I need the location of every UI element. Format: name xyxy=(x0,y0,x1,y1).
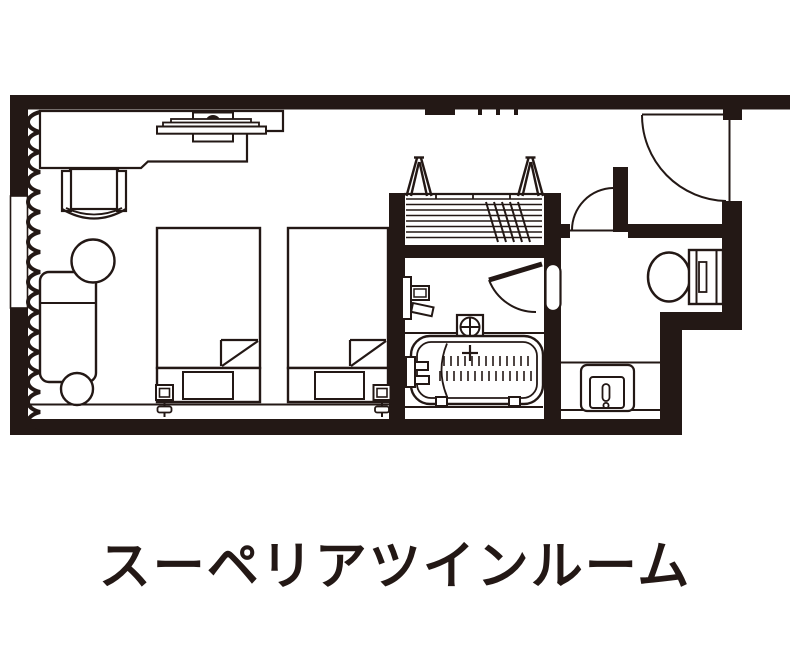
wall-bottom xyxy=(10,419,682,435)
vanity-sink xyxy=(581,365,634,411)
tub-faucet-plate xyxy=(406,357,415,387)
twin-bed-right xyxy=(288,228,388,402)
hanging-clothes-lines xyxy=(486,202,530,242)
wall-closet-bottom xyxy=(389,245,561,258)
desk-chair xyxy=(62,169,126,219)
lamp-base xyxy=(375,407,389,413)
wall-tick xyxy=(514,109,518,115)
bed-mattress xyxy=(288,228,388,368)
floor-plan xyxy=(0,0,790,470)
tub-faucet xyxy=(415,362,428,370)
vanity-faucet xyxy=(603,384,610,401)
grab-bar xyxy=(546,264,561,311)
wall-tick xyxy=(496,109,500,115)
bed-mattress xyxy=(157,228,260,368)
chair-seat xyxy=(70,169,118,209)
bed-footboard-panel xyxy=(315,372,364,399)
tub-foot xyxy=(509,397,520,406)
tv-screen-base xyxy=(157,127,266,134)
bed-footboard-panel xyxy=(183,372,233,399)
bathroom-door xyxy=(489,264,542,312)
sofa xyxy=(40,272,96,382)
tub-foot xyxy=(436,397,447,406)
clothes-hanger-icon xyxy=(518,158,543,197)
wall-right xyxy=(722,201,742,330)
ottoman xyxy=(61,373,93,405)
basin-wall-plate xyxy=(402,277,411,319)
lamp-head-inner xyxy=(160,389,170,398)
hand-shower xyxy=(411,303,433,316)
reading-lamp-right xyxy=(374,385,391,417)
twin-bed-left xyxy=(157,228,260,402)
closet-shelves xyxy=(406,199,542,238)
curtain-line xyxy=(28,112,40,432)
tub-inner xyxy=(417,342,537,398)
wall-tick xyxy=(478,109,482,115)
entrance-door-arc xyxy=(642,115,726,201)
wash-basin xyxy=(402,277,434,319)
room-type-title: スーペリアツインルーム xyxy=(0,524,790,599)
toilet-tank-inner xyxy=(699,262,707,292)
wall-top xyxy=(10,95,790,110)
lamp-base xyxy=(158,407,172,413)
wall-tick xyxy=(425,109,455,115)
wall-entrance-stub xyxy=(723,109,742,120)
wall-pier xyxy=(613,167,628,232)
lamp-head-inner xyxy=(377,389,387,398)
clothes-hanger-icon xyxy=(407,158,432,197)
closet xyxy=(404,158,544,243)
hall-door-arc xyxy=(572,188,613,230)
bathtub xyxy=(406,336,543,406)
bathroom-door-leaf xyxy=(489,264,542,280)
round-table xyxy=(72,240,115,283)
floor-plan-page: スーペリアツインルーム xyxy=(0,0,790,658)
bathroom-door-arc xyxy=(489,280,536,312)
toilet-bowl xyxy=(648,253,690,302)
reading-lamp-left xyxy=(156,385,173,417)
wall-doorway-stub xyxy=(544,224,570,238)
basin-faucet-inner xyxy=(414,289,426,297)
wall-vanity-east xyxy=(660,312,682,435)
chair-armrest xyxy=(117,171,126,211)
chair-armrest xyxy=(62,171,71,211)
toilet xyxy=(648,250,723,304)
tub-faucet xyxy=(415,376,429,384)
window xyxy=(11,196,28,308)
